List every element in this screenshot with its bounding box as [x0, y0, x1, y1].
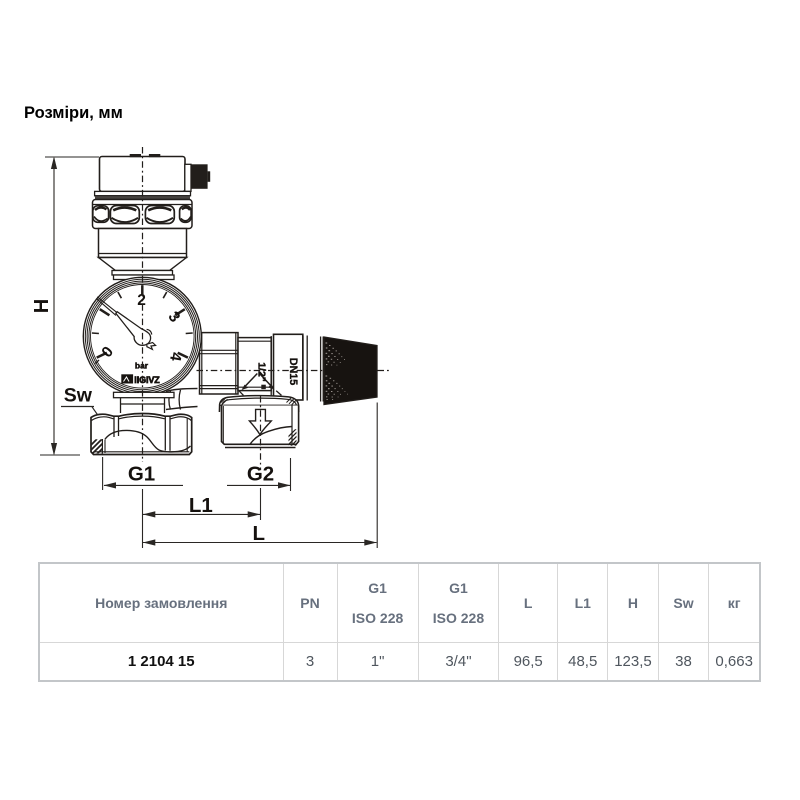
svg-text:2: 2	[137, 292, 146, 309]
svg-text:L: L	[253, 522, 266, 545]
svg-text:L1: L1	[189, 494, 213, 517]
svg-text:1/2": 1/2"	[256, 362, 268, 382]
svg-text:H: H	[31, 299, 53, 313]
svg-text:bar: bar	[135, 360, 149, 370]
svg-text:G2: G2	[247, 463, 274, 486]
svg-text:IIGIVZ: IIGIVZ	[134, 375, 160, 385]
svg-text:G1: G1	[128, 463, 155, 486]
svg-text:Sw: Sw	[64, 385, 93, 407]
svg-text:DN15: DN15	[287, 358, 299, 386]
